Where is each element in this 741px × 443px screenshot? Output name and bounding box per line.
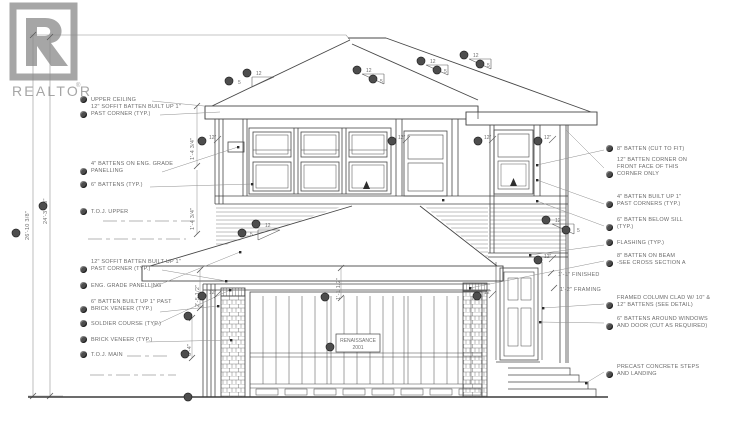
soffit-offset: 12" bbox=[544, 135, 552, 141]
soffit-offset: 12" bbox=[544, 254, 552, 260]
keynote-dot bbox=[238, 229, 246, 237]
label-text: BRICK VENEER (TYP.) bbox=[91, 337, 152, 344]
precast-steps bbox=[508, 368, 596, 397]
label-text: 6" BATTEN BUILT UP 1" PAST BRICK VENEER … bbox=[91, 299, 172, 313]
keynote-dot bbox=[39, 202, 47, 210]
keynote-icon bbox=[606, 260, 613, 267]
label-text: 8" BATTEN (CUT TO FIT) bbox=[617, 146, 684, 153]
registered-mark-icon: ® bbox=[76, 82, 81, 89]
label-text: 6" BATTENS AROUND WINDOWS AND DOOR (CUT … bbox=[617, 316, 708, 330]
label-framed-column: FRAMED COLUMN CLAD W/ 10" & 12" BATTENS … bbox=[606, 295, 710, 309]
label-6in-batten-sill: 6" BATTEN BELOW SILL (TYP.) bbox=[606, 217, 683, 231]
label-soldier-course: SOLDIER COURSE (TYP.) bbox=[80, 320, 161, 328]
slope-run: 5 bbox=[444, 69, 447, 75]
keynote-dot bbox=[252, 220, 260, 228]
brick-column-right bbox=[463, 283, 487, 397]
slope-rise: 12 bbox=[366, 68, 372, 74]
label-text: 8" BATTEN ON BEAM -SEE CROSS SECTION A bbox=[617, 253, 686, 267]
operable-sash-arrow-icon bbox=[510, 178, 517, 186]
label-text: 12" BATTEN CORNER ON FRONT FACE OF THIS … bbox=[617, 157, 687, 178]
keynote-dot bbox=[243, 69, 251, 77]
dim-finished: 1'-1" FINISHED bbox=[558, 272, 600, 278]
keynote-dot bbox=[225, 77, 233, 85]
upper-window-group bbox=[249, 128, 391, 194]
label-text: FRAMED COLUMN CLAD W/ 10" & 12" BATTENS … bbox=[617, 295, 710, 309]
slope-rise: 12 bbox=[555, 218, 561, 224]
label-text: 4" BATTEN BUILT UP 1" PAST CORNERS (TYP.… bbox=[617, 194, 681, 208]
label-upper-ceiling: UPPER CEILING bbox=[80, 96, 136, 104]
keynote-dot bbox=[388, 137, 396, 145]
soffit-offset: 12" bbox=[398, 135, 406, 141]
keynote-dot bbox=[12, 229, 20, 237]
label-8in-batten-cut: 8" BATTEN (CUT TO FIT) bbox=[606, 145, 684, 153]
label-text: T.O.J. MAIN bbox=[91, 352, 123, 359]
keynote-icon bbox=[80, 336, 87, 343]
label-precast-steps: PRECAST CONCRETE STEPS AND LANDING bbox=[606, 364, 699, 378]
label-soffit-batten-lower: 12" SOFFIT BATTEN BUILT UP 1" PAST CORNE… bbox=[80, 259, 181, 273]
keynote-dot bbox=[474, 137, 482, 145]
keynote-icon bbox=[606, 323, 613, 330]
keynote-dot bbox=[542, 216, 550, 224]
keynote-dot bbox=[184, 393, 192, 401]
keynote-icon bbox=[80, 168, 87, 175]
label-text: 12" SOFFIT BATTEN BUILT UP 1" PAST CORNE… bbox=[91, 104, 181, 118]
label-text: 4" BATTENS ON ENG. GRADE PANELLING bbox=[91, 161, 173, 175]
keynote-dot bbox=[326, 343, 334, 351]
realtor-logo: REALTOR ® bbox=[12, 6, 92, 99]
keynote-icon bbox=[606, 145, 613, 152]
label-text: 12" SOFFIT BATTEN BUILT UP 1" PAST CORNE… bbox=[91, 259, 181, 273]
keynote-icon bbox=[80, 282, 87, 289]
keynote-dot bbox=[476, 60, 484, 68]
label-text: 6" BATTEN BELOW SILL (TYP.) bbox=[617, 217, 683, 231]
keynote-dot bbox=[562, 226, 570, 234]
keynote-dot bbox=[181, 350, 189, 358]
keynote-icon bbox=[80, 306, 87, 313]
slope-run: 5 bbox=[380, 79, 383, 85]
label-text: T.O.J. UPPER bbox=[91, 209, 128, 216]
label-text: ENG. GRADE PANELLING bbox=[91, 283, 162, 290]
model-year: 2001 bbox=[352, 345, 363, 351]
slope-run: 5 bbox=[487, 63, 490, 69]
elevation-drawing-sheet: REALTOR ® 26'-10 3/8" 24'-3 3/8" bbox=[0, 0, 741, 443]
soffit-offset: 12" bbox=[484, 135, 492, 141]
label-8in-batten-beam: 8" BATTEN ON BEAM -SEE CROSS SECTION A bbox=[606, 253, 686, 267]
keynote-dot bbox=[417, 57, 425, 65]
wing-window bbox=[494, 130, 533, 194]
operable-sash-arrow-icon bbox=[363, 181, 370, 189]
slope-run: 5 bbox=[577, 228, 580, 234]
keynote-icon bbox=[80, 266, 87, 273]
slope-rise: 12 bbox=[430, 59, 436, 65]
label-text: UPPER CEILING bbox=[91, 97, 136, 104]
keynote-icon bbox=[606, 201, 613, 208]
label-brick-veneer: BRICK VENEER (TYP.) bbox=[80, 336, 152, 344]
keynote-dot bbox=[460, 51, 468, 59]
roof-slope-markers bbox=[252, 59, 574, 240]
label-6in-batten-brick: 6" BATTEN BUILT UP 1" PAST BRICK VENEER … bbox=[80, 299, 172, 313]
label-text: PRECAST CONCRETE STEPS AND LANDING bbox=[617, 364, 699, 378]
soffit-offset: 12" bbox=[209, 135, 217, 141]
keynote-dot bbox=[184, 312, 192, 320]
label-4in-batten-corners: 4" BATTEN BUILT UP 1" PAST CORNERS (TYP.… bbox=[606, 194, 681, 208]
label-text: 6" BATTENS (TYP.) bbox=[91, 182, 143, 189]
mid-siding bbox=[214, 208, 566, 256]
model-name-plate: RENAISSANCE 2001 bbox=[336, 334, 380, 352]
soffit-offset: 12" bbox=[209, 290, 217, 296]
keynote-icon bbox=[606, 171, 613, 178]
slope-run: 5 bbox=[238, 80, 241, 86]
soffit-offset: 12" bbox=[484, 290, 492, 296]
dim-framing: 1'-2" FRAMING bbox=[560, 287, 601, 293]
keynote-icon bbox=[606, 239, 613, 246]
label-text: SOLDIER COURSE (TYP.) bbox=[91, 321, 161, 328]
keynote-icon bbox=[606, 224, 613, 231]
keynote-dot bbox=[534, 137, 542, 145]
keynote-dot bbox=[534, 256, 542, 264]
brick-column-left bbox=[221, 288, 245, 397]
keynote-dot bbox=[369, 75, 377, 83]
keynote-dot bbox=[321, 293, 329, 301]
dim-overall-height: 26'-10 3/8" bbox=[25, 211, 31, 240]
keynote-dot bbox=[198, 137, 206, 145]
label-12in-batten-corner: 12" BATTEN CORNER ON FRONT FACE OF THIS … bbox=[606, 157, 687, 178]
keynote-dot bbox=[433, 66, 441, 74]
label-toj-upper: T.O.J. UPPER bbox=[80, 208, 128, 216]
model-name: RENAISSANCE bbox=[340, 338, 377, 344]
keynote-icon bbox=[80, 96, 87, 103]
slope-rise: 12 bbox=[265, 223, 271, 229]
label-eng-grade-panelling: ENG. GRADE PANELLING bbox=[80, 282, 162, 290]
keynote-icon bbox=[606, 371, 613, 378]
label-soffit-batten-upper: 12" SOFFIT BATTEN BUILT UP 1" PAST CORNE… bbox=[80, 104, 181, 118]
keynote-icon bbox=[80, 181, 87, 188]
keynote-icon bbox=[80, 351, 87, 358]
slope-rise: 12 bbox=[256, 71, 262, 77]
dim-garage-fascia: 1'-1 1/2" bbox=[336, 278, 342, 300]
dim-upper-band: 1'-4 3/4" bbox=[190, 138, 196, 160]
label-battens-around-windows: 6" BATTENS AROUND WINDOWS AND DOOR (CUT … bbox=[606, 316, 708, 330]
slope-run: 5 bbox=[250, 232, 253, 238]
keynote-dot bbox=[473, 292, 481, 300]
label-flashing: FLASHING (TYP.) bbox=[606, 239, 664, 247]
keynote-dot bbox=[353, 66, 361, 74]
keynote-dot bbox=[198, 292, 206, 300]
slope-rise: 12 bbox=[473, 53, 479, 59]
dim-upper-band: 1'-4 3/4" bbox=[190, 208, 196, 230]
upper-window-center bbox=[404, 131, 447, 196]
keynote-icon bbox=[80, 320, 87, 327]
label-6in-battens: 6" BATTENS (TYP.) bbox=[80, 181, 143, 189]
label-toj-main: T.O.J. MAIN bbox=[80, 351, 123, 359]
keynote-icon bbox=[80, 208, 87, 215]
label-text: FLASHING (TYP.) bbox=[617, 240, 664, 247]
keynote-icon bbox=[606, 302, 613, 309]
keynote-icon bbox=[80, 111, 87, 118]
label-4in-battens: 4" BATTENS ON ENG. GRADE PANELLING bbox=[80, 161, 173, 175]
